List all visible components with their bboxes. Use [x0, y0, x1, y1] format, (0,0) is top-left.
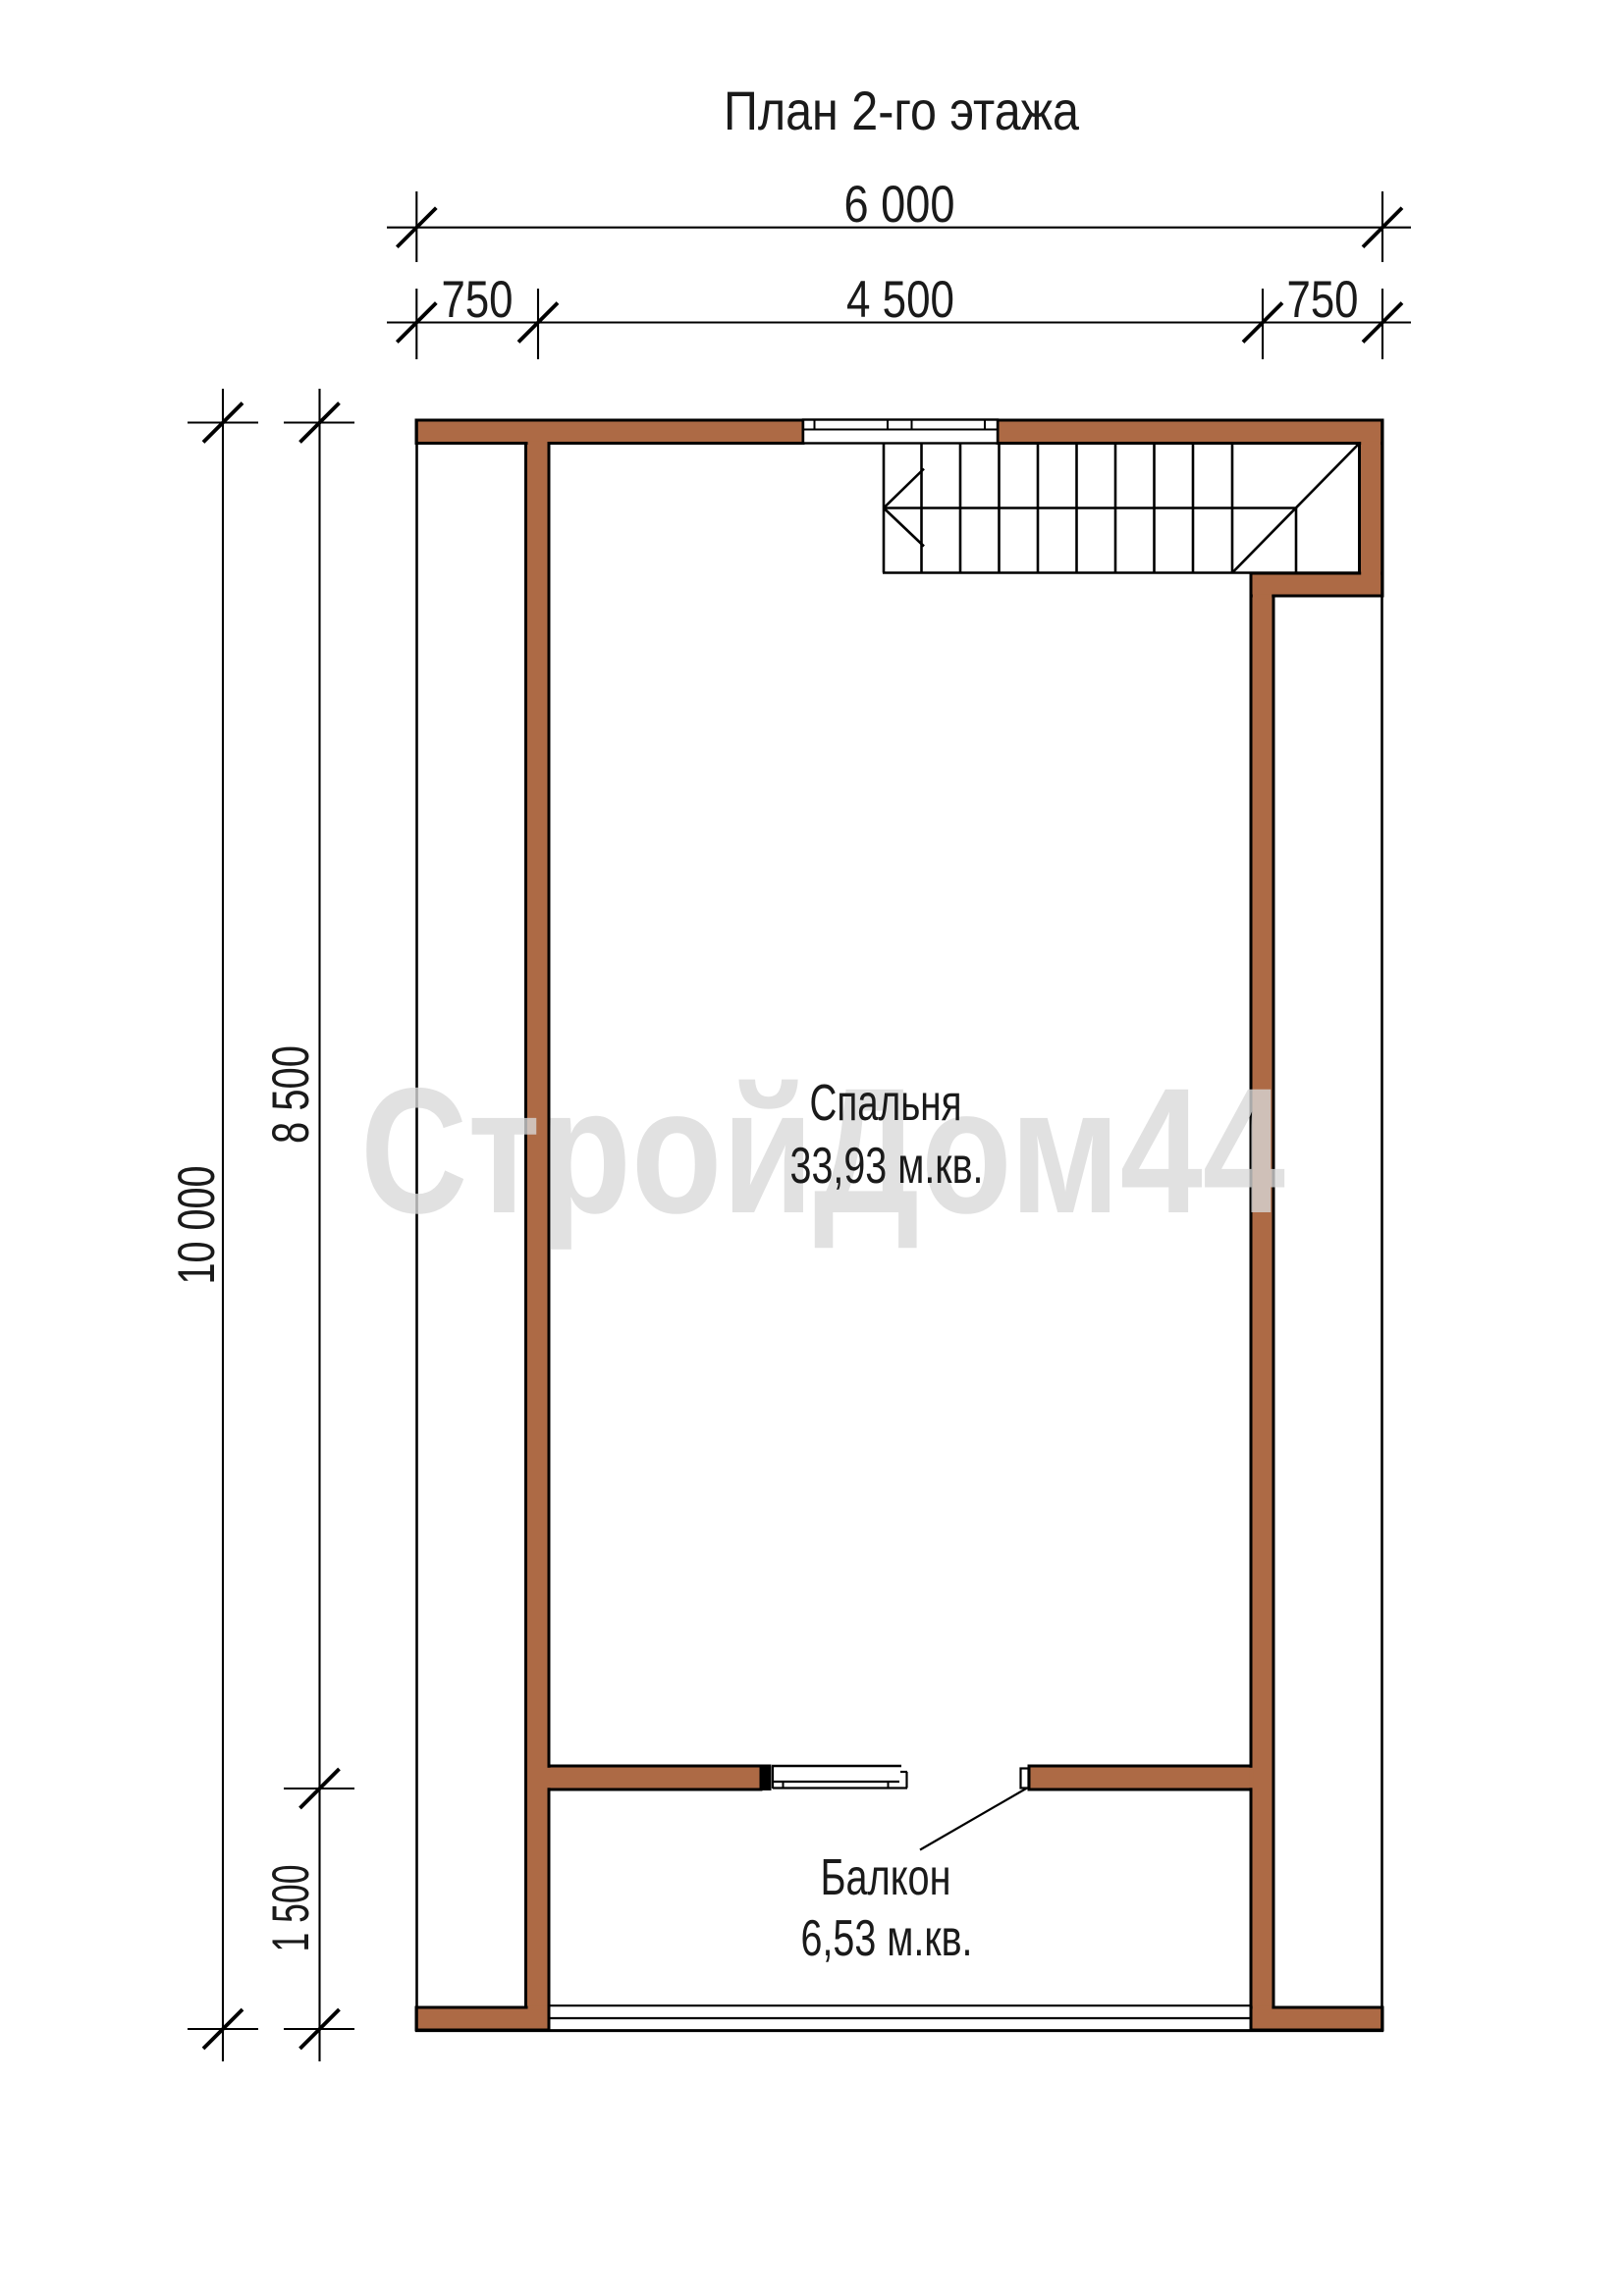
svg-text:33,93 м.кв.: 33,93 м.кв. — [790, 1138, 984, 1195]
svg-text:750: 750 — [1287, 271, 1359, 329]
svg-text:10 000: 10 000 — [168, 1166, 226, 1285]
svg-text:1 500: 1 500 — [262, 1865, 320, 1952]
svg-text:8 500: 8 500 — [262, 1045, 320, 1144]
svg-text:Спальня: Спальня — [810, 1075, 962, 1132]
svg-text:750: 750 — [442, 271, 514, 329]
svg-text:Балкон: Балкон — [821, 1849, 951, 1906]
svg-text:6 000: 6 000 — [844, 176, 955, 234]
svg-text:4 500: 4 500 — [846, 271, 954, 329]
svg-text:6,53 м.кв.: 6,53 м.кв. — [801, 1910, 973, 1967]
svg-text:План 2-го этажа: План 2-го этажа — [724, 80, 1080, 141]
